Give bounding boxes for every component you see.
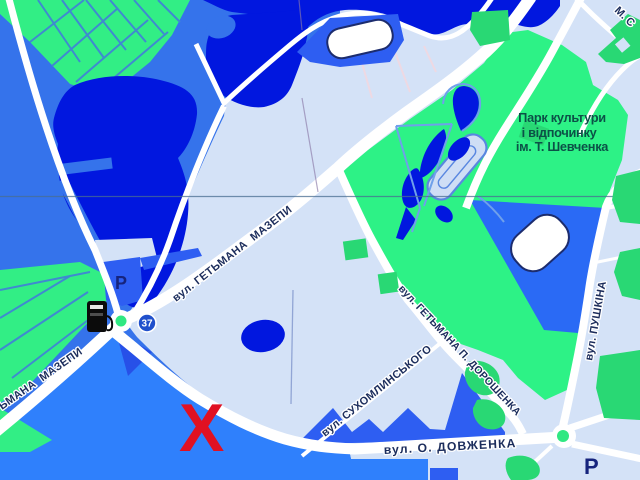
svg-text:37: 37 xyxy=(141,319,153,330)
svg-text:P: P xyxy=(584,454,599,479)
svg-text:P: P xyxy=(115,273,127,293)
svg-text:Парк культури: Парк культури xyxy=(518,110,606,125)
svg-text:X: X xyxy=(179,390,224,466)
svg-text:і відпочинку: і відпочинку xyxy=(522,125,598,140)
svg-text:ім. Т. Шевченка: ім. Т. Шевченка xyxy=(516,139,609,154)
